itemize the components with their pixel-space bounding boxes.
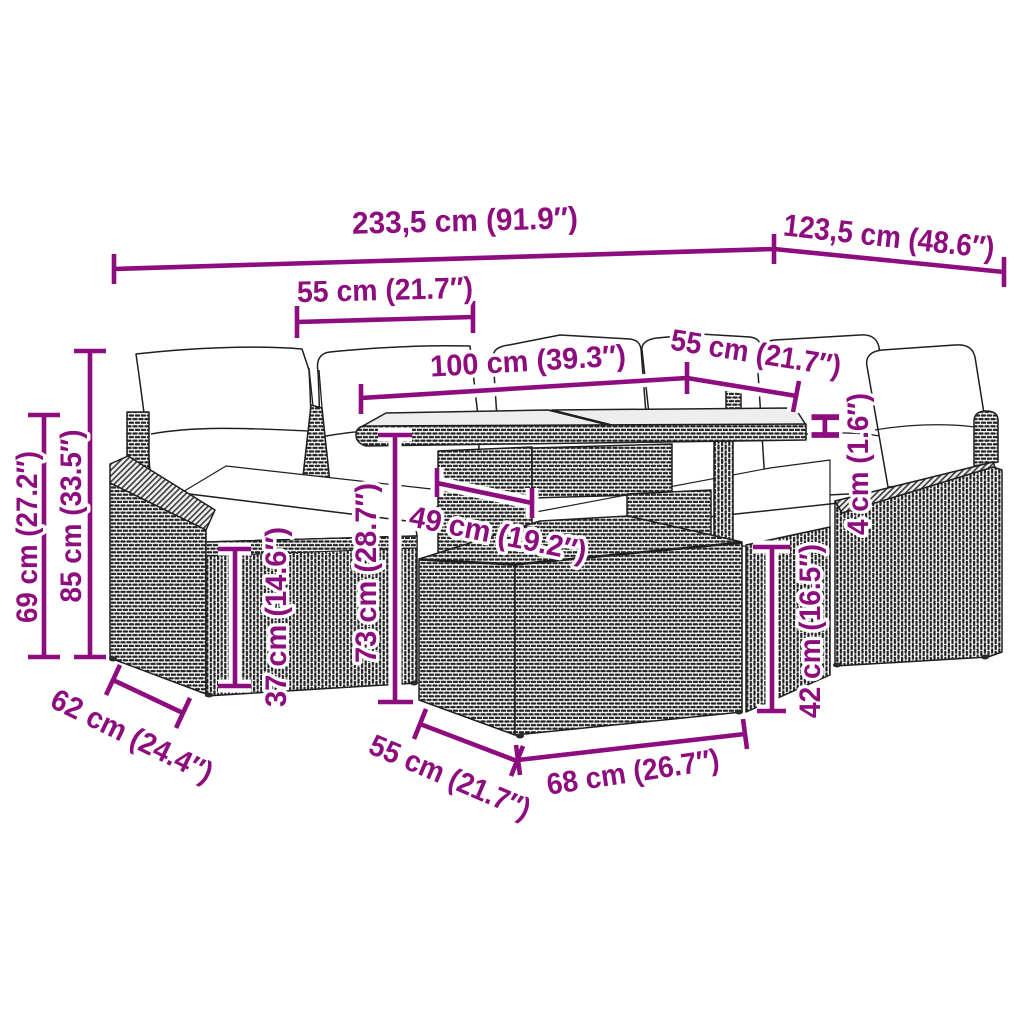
svg-text:37 cm (14.6″): 37 cm (14.6″) [260, 527, 293, 707]
svg-text:85 cm (33.5″): 85 cm (33.5″) [55, 430, 88, 603]
svg-text:69 cm (27.2″): 69 cm (27.2″) [11, 451, 44, 623]
svg-text:42 cm (16.5″): 42 cm (16.5″) [794, 544, 827, 718]
svg-text:55 cm (21.7″): 55 cm (21.7″) [297, 272, 474, 310]
svg-text:73 cm (28.7″): 73 cm (28.7″) [350, 483, 383, 663]
svg-text:4 cm (1.6″): 4 cm (1.6″) [842, 393, 875, 535]
svg-text:233,5 cm (91.9″): 233,5 cm (91.9″) [352, 200, 579, 241]
